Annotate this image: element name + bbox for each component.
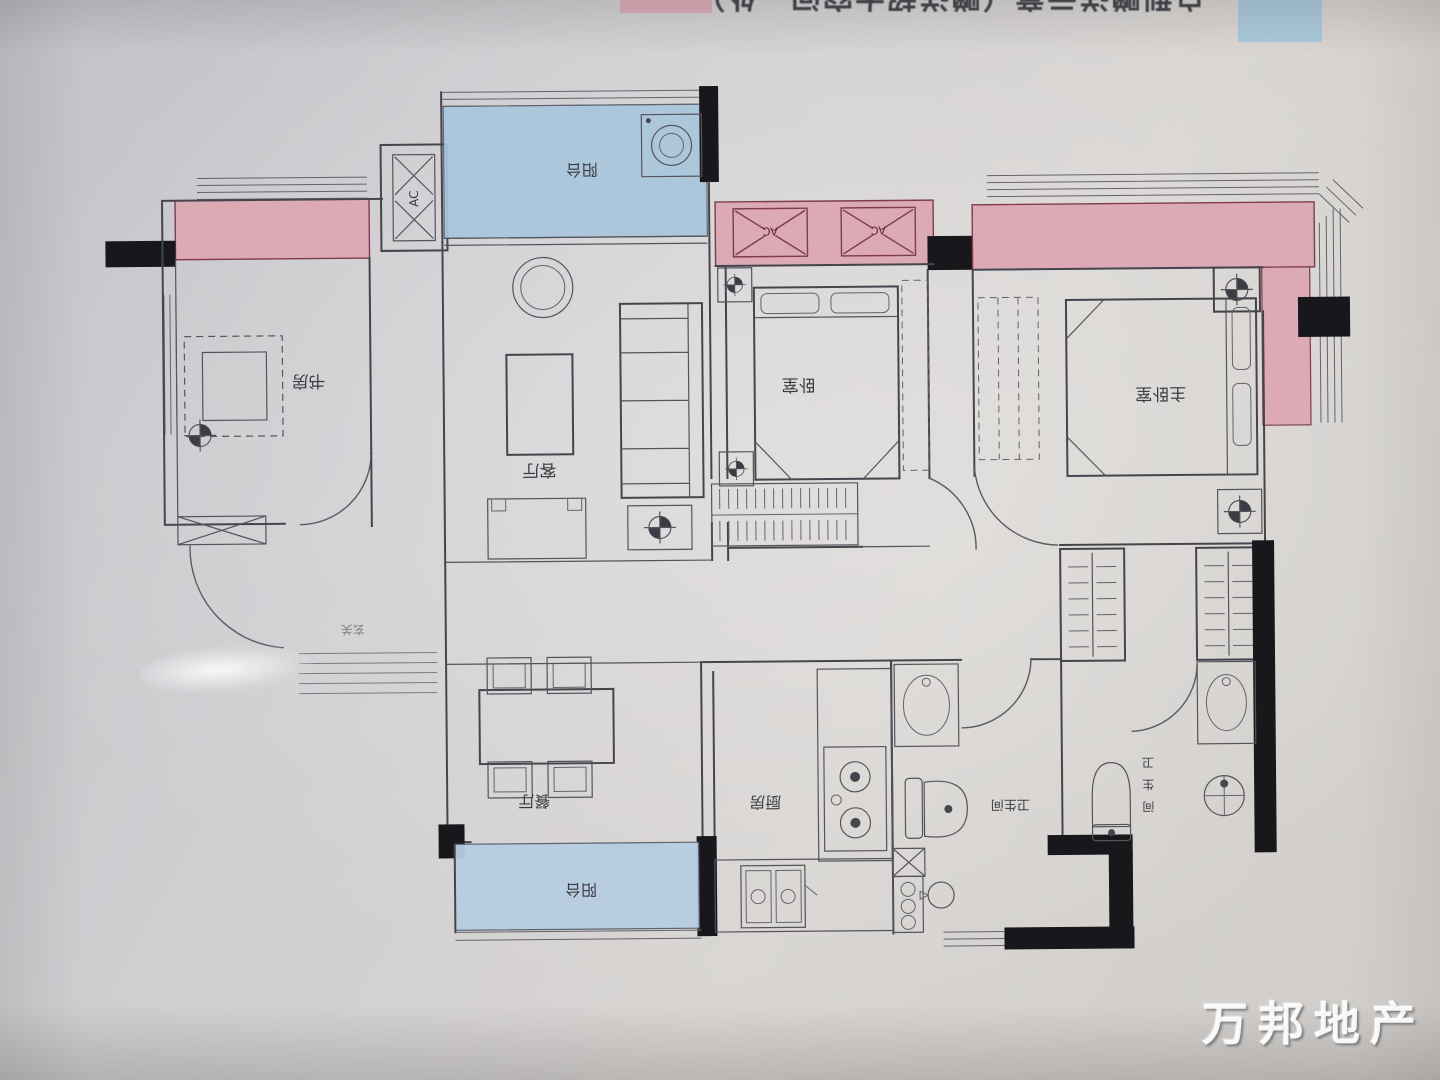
label-balcony-top: 阳台 xyxy=(566,160,598,179)
kitchen-counter xyxy=(817,669,893,862)
toilet xyxy=(905,778,968,839)
room-kitchen: 厨房 xyxy=(695,660,954,936)
wall-segment xyxy=(1298,296,1350,336)
tv-console xyxy=(488,498,587,559)
column-box xyxy=(1214,267,1260,311)
label-balcony-bottom: 阳台 xyxy=(565,880,597,899)
wall-segment xyxy=(105,241,175,268)
washbasin xyxy=(1197,661,1256,744)
wall-segment xyxy=(1109,852,1134,930)
bedroom-door-arc xyxy=(929,478,976,550)
label-study: 书房 xyxy=(292,370,326,390)
label-master-bedroom: 主卧室 xyxy=(1135,383,1186,403)
study-desk-top xyxy=(202,352,267,421)
label-dining: 餐厅 xyxy=(518,791,550,810)
room-dining: 餐厅 xyxy=(436,561,615,859)
bonus-area-pink-master xyxy=(972,202,1315,270)
label-bedroom: 卧室 xyxy=(782,374,816,394)
coffee-table xyxy=(506,354,573,455)
nightstand xyxy=(718,268,752,302)
dining-chair xyxy=(548,761,592,797)
dining-table xyxy=(479,689,614,764)
agency-watermark: 万邦地产 xyxy=(1202,988,1426,1054)
label-bathroom2-char: 生 xyxy=(1142,777,1154,791)
room-balcony-top: 阳台 xyxy=(441,86,719,245)
bathroom1-door-arc xyxy=(961,659,1032,728)
label-ac-2: AC xyxy=(870,224,885,237)
bed-double xyxy=(754,280,930,480)
label-kitchen: 厨房 xyxy=(749,792,781,811)
room-master-bedroom: 主卧室 xyxy=(972,172,1366,545)
study-desk xyxy=(184,336,283,437)
master-door-arc xyxy=(974,467,1058,546)
washbasin xyxy=(894,664,959,747)
wall-segment xyxy=(1004,926,1134,949)
mop-basin xyxy=(1204,775,1244,815)
bathroom2-door-arc xyxy=(1131,664,1198,732)
closet-hangers-1 xyxy=(1060,548,1125,661)
toilet xyxy=(1092,762,1131,840)
label-entry: 玄关 xyxy=(341,622,365,637)
bonus-area-pink-study xyxy=(175,199,370,260)
label-bathroom1: 卫生间 xyxy=(991,796,1030,811)
sofa xyxy=(620,303,704,498)
label-bathroom2-char: 间 xyxy=(1142,799,1154,813)
room-living: 客厅 xyxy=(442,182,728,562)
room-bathroom1: 卫生间 xyxy=(891,659,1063,858)
bonus-area-pink-master-side xyxy=(1262,267,1311,425)
label-living: 客厅 xyxy=(522,459,556,479)
kitchen-sink xyxy=(741,865,818,928)
wall-basin xyxy=(920,882,954,908)
column-symbol xyxy=(184,419,216,451)
wardrobe-dashed xyxy=(978,297,1039,460)
hallway-lines xyxy=(445,546,931,664)
closet-hangers-2 xyxy=(1196,547,1261,660)
ac-closet: AC xyxy=(381,144,448,251)
study-door-arc xyxy=(299,453,372,525)
label-bathroom2-char: 卫 xyxy=(1142,755,1154,769)
nightstand xyxy=(719,452,753,486)
utility-shaft xyxy=(893,848,926,932)
wall-segment xyxy=(1048,834,1133,855)
room-study: 书房 xyxy=(105,177,385,528)
label-ac-closet: AC xyxy=(407,190,421,207)
room-bedroom: AC AC xyxy=(709,200,978,552)
floor-plan-drawing: 书房 玄关 AC xyxy=(0,0,1440,1080)
column-box xyxy=(1218,489,1262,533)
room-bathroom2: 卫 生 间 xyxy=(940,540,1278,950)
stove xyxy=(824,747,887,852)
dresser xyxy=(712,483,859,546)
floor-symbol-square xyxy=(628,505,692,550)
room-balcony-bottom: 阳台 xyxy=(455,842,702,940)
label-ac-1: AC xyxy=(762,224,777,237)
